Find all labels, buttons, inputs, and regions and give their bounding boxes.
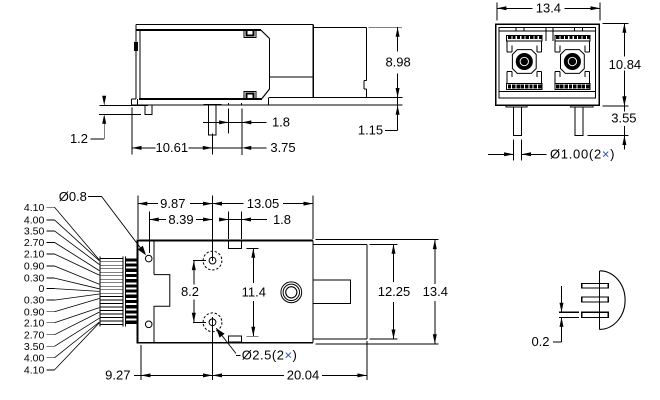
svg-text:1.8: 1.8 [273,212,291,227]
svg-text:Ø1.00(2×): Ø1.00(2×) [550,147,615,162]
svg-text:20.04: 20.04 [287,368,320,383]
svg-text:4.00: 4.00 [24,352,45,364]
svg-text:9.27: 9.27 [105,368,130,383]
svg-text:8.39: 8.39 [168,212,193,227]
svg-text:9.87: 9.87 [160,196,185,211]
svg-text:4.10: 4.10 [24,202,45,214]
svg-text:0: 0 [38,283,44,295]
svg-text:1.15: 1.15 [358,123,383,138]
svg-text:1.2: 1.2 [70,131,88,146]
svg-text:3.50: 3.50 [24,341,45,353]
svg-text:8.2: 8.2 [181,284,199,299]
svg-text:3.50: 3.50 [24,226,45,238]
svg-text:10.84: 10.84 [609,57,642,72]
svg-text:2.70: 2.70 [24,237,45,249]
svg-text:0.2: 0.2 [531,334,549,349]
svg-text:2.70: 2.70 [24,329,45,341]
svg-text:8.98: 8.98 [385,55,410,70]
svg-text:10.61: 10.61 [156,140,189,155]
svg-text:12.25: 12.25 [378,284,411,299]
svg-text:4.10: 4.10 [24,365,45,377]
svg-text:13.4: 13.4 [536,1,561,16]
svg-text:0.90: 0.90 [24,261,45,273]
svg-text:0.30: 0.30 [24,295,45,307]
svg-text:3.55: 3.55 [611,111,636,126]
svg-text:13.05: 13.05 [247,196,280,211]
svg-text:11.4: 11.4 [242,284,266,299]
svg-text:13.4: 13.4 [423,284,448,299]
svg-text:Ø0.8: Ø0.8 [59,189,87,204]
svg-text:3.75: 3.75 [270,140,295,155]
svg-text:1.8: 1.8 [272,115,290,130]
svg-text:2.10: 2.10 [24,249,45,261]
svg-text:2.10: 2.10 [24,317,45,329]
svg-text:Ø2.5(2×): Ø2.5(2×) [242,348,298,363]
